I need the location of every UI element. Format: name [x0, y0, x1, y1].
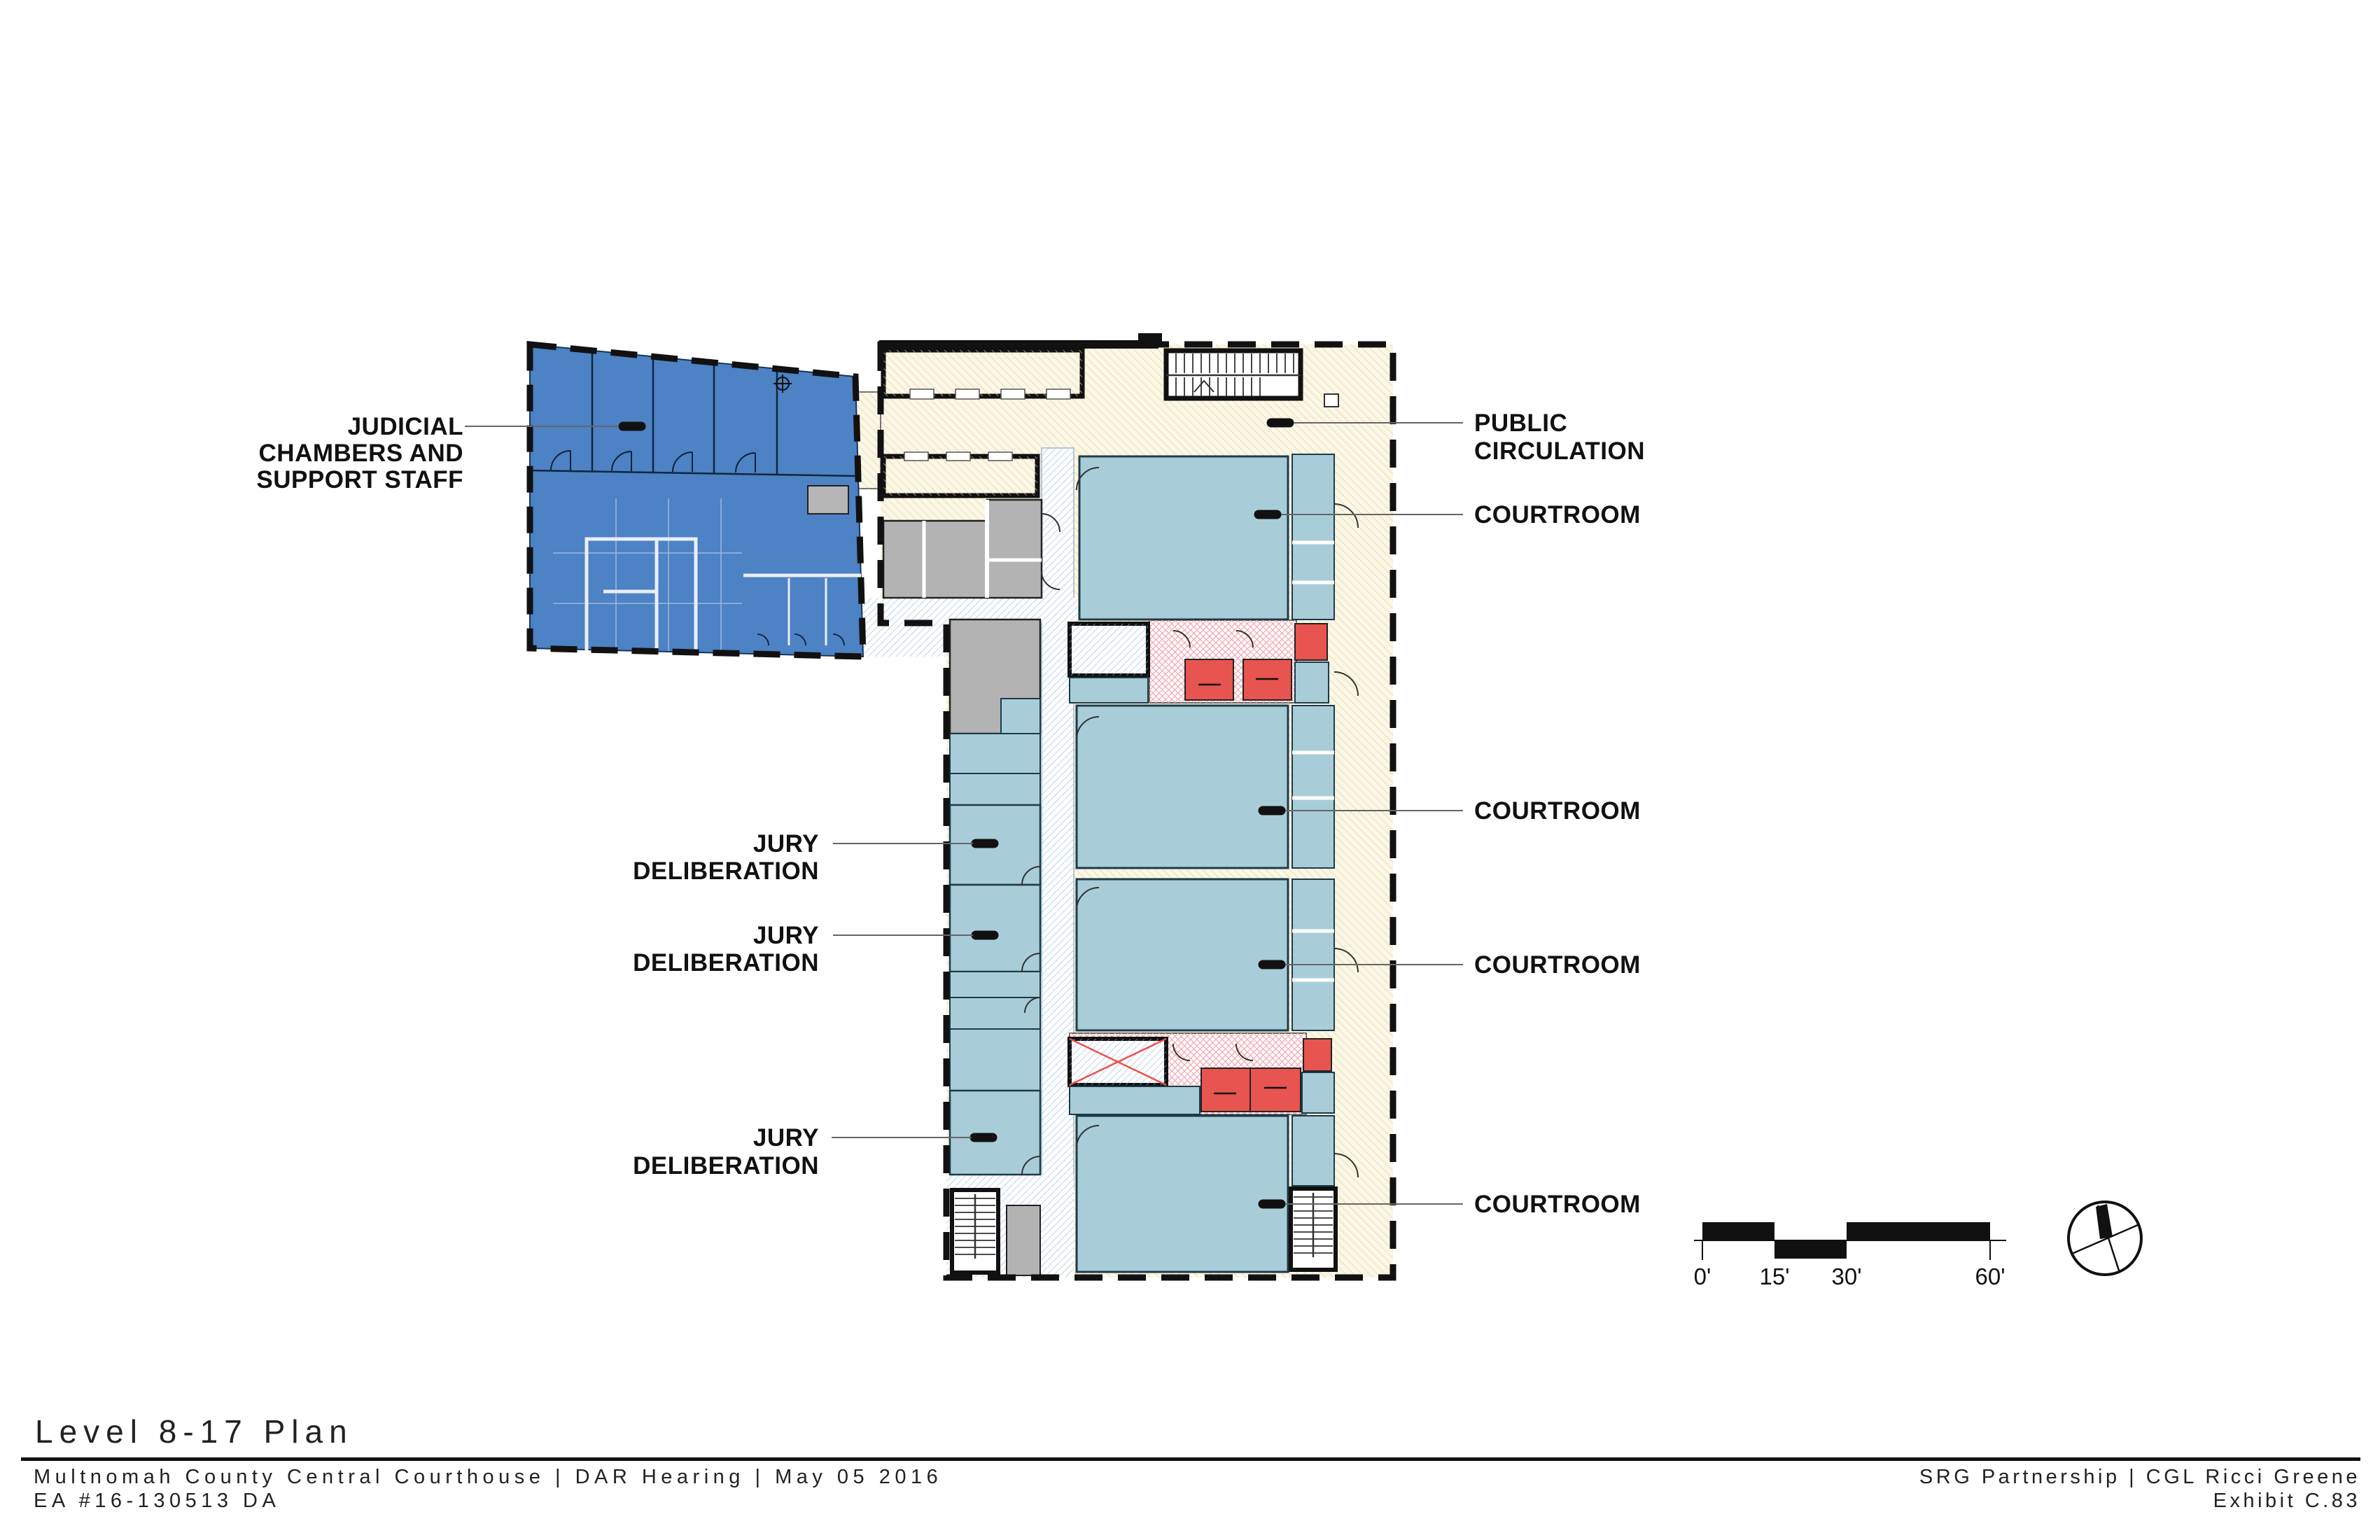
scale-segment	[1702, 1222, 1774, 1240]
courtroom-2-room	[1077, 706, 1288, 868]
scale-tick-0: 0'	[1694, 1263, 1711, 1289]
label-jury-1-line1: JURY	[753, 830, 819, 857]
small-room	[1295, 662, 1329, 703]
wing-room	[950, 1029, 1040, 1091]
label-jury-3-line1: JURY	[753, 1124, 819, 1151]
label-courtroom-3: COURTROOM	[1474, 951, 1641, 979]
small-room	[1302, 1072, 1334, 1113]
scale-segment	[1774, 1240, 1847, 1259]
label-courtroom-1: COURTROOM	[1474, 501, 1641, 528]
sheet: JUDICIAL CHAMBERS AND SUPPORT STAFF PUBL…	[0, 0, 2380, 1540]
courtrooms	[1077, 456, 1288, 1272]
label-courtroom-2: COURTROOM	[1474, 797, 1641, 825]
exhibit-number: Exhibit C.83	[2213, 1490, 2360, 1513]
wing-room	[950, 773, 1040, 805]
label-public-circulation-line2: CIRCULATION	[1474, 437, 1645, 465]
small-room	[1070, 1086, 1200, 1114]
elevator-shaft	[1185, 659, 1233, 700]
av-room-hatch	[1070, 624, 1148, 675]
label-jury-2-line2: DELIBERATION	[633, 949, 819, 976]
courtroom-4-room	[1077, 1116, 1288, 1272]
elevator-shaft	[1250, 1068, 1301, 1112]
shaft-box	[1324, 394, 1338, 407]
wing-room	[950, 997, 1040, 1029]
judicial-chambers-building	[530, 344, 863, 657]
label-jury-1-line2: DELIBERATION	[633, 857, 819, 885]
scale-segment	[1847, 1222, 1990, 1240]
floor-plan-drawing: JUDICIAL CHAMBERS AND SUPPORT STAFF PUBL…	[0, 0, 2380, 1540]
shaft-red	[1295, 624, 1327, 660]
sheet-title: Level 8-17 Plan	[35, 1413, 353, 1450]
vestibule-gray	[808, 486, 848, 514]
small-room	[1001, 699, 1040, 734]
scale-tick-15: 15'	[1759, 1263, 1789, 1289]
small-room	[1070, 678, 1148, 703]
wing-room	[950, 734, 1040, 773]
shaft-red	[1303, 1039, 1331, 1071]
window-slot	[904, 452, 928, 461]
toilet-cluster-lower	[1070, 1033, 1334, 1114]
jury-wing	[950, 619, 1040, 1175]
window-slot	[910, 389, 934, 399]
electrical-room-hatch	[883, 456, 1037, 496]
project-line: Multnomah County Central Courthouse | DA…	[34, 1466, 942, 1489]
scale-tick-60: 60'	[1975, 1263, 2005, 1289]
strip-room	[1292, 1116, 1334, 1186]
label-judicial-line3: SUPPORT STAFF	[256, 466, 463, 493]
courtroom-1-room	[1079, 456, 1288, 619]
strip-room	[1292, 879, 1334, 1030]
north-arrow-icon	[2068, 1202, 2141, 1275]
strip-room	[1292, 454, 1334, 619]
label-courtroom-4: COURTROOM	[1474, 1191, 1641, 1218]
firm-line: SRG Partnership | CGL Ricci Greene	[1919, 1466, 2360, 1489]
window-slot	[946, 452, 970, 461]
window-slot	[1001, 389, 1025, 399]
project-number: EA #16-130513 DA	[34, 1490, 280, 1513]
strip-room	[1292, 706, 1334, 868]
title-rule	[21, 1457, 2360, 1461]
toilet-cluster-upper	[1070, 620, 1329, 703]
window-slot	[988, 452, 1012, 461]
label-judicial-line1: JUDICIAL	[348, 413, 463, 440]
courtroom-3-room	[1077, 879, 1288, 1030]
label-judicial-line2: CHAMBERS AND	[259, 440, 463, 467]
window-slot	[955, 389, 979, 399]
label-jury-3-line2: DELIBERATION	[633, 1152, 819, 1179]
wing-room	[950, 972, 1040, 997]
window-slot	[1046, 389, 1070, 399]
label-jury-2-line1: JURY	[753, 922, 819, 949]
service-room	[1007, 1205, 1040, 1275]
label-public-circulation-line1: PUBLIC	[1474, 409, 1567, 437]
scale-tick-30: 30'	[1831, 1263, 1861, 1289]
elevator-shaft	[1201, 1068, 1250, 1112]
